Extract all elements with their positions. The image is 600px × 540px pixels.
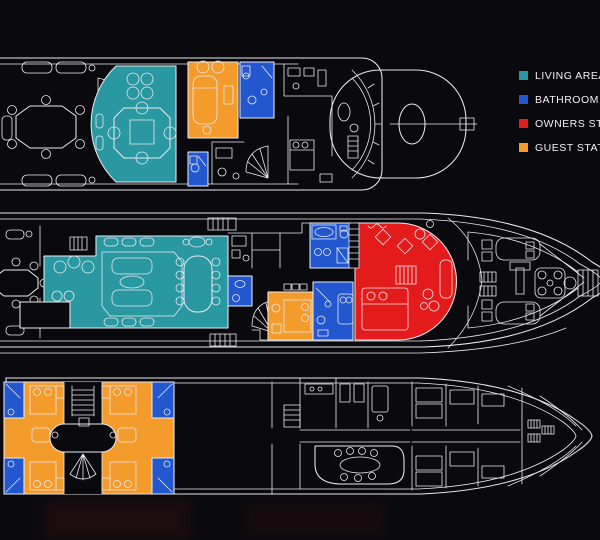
- stairwell-strip: [349, 223, 359, 268]
- lower-deck-plan: [0, 372, 600, 504]
- top-deck-living-area-region: [91, 66, 176, 182]
- legend-swatch-living-area: [519, 71, 528, 80]
- legend-swatch-owners-stateroom: [519, 119, 528, 128]
- crew-mess-table: [340, 457, 380, 473]
- windshield-arc: [352, 70, 381, 178]
- crew-stairs: [284, 405, 300, 427]
- scan-bleed-artifact: [45, 500, 190, 540]
- lower-deck-crew-area: [272, 378, 554, 494]
- legend-item-guest-stateroom: GUEST STAT: [519, 142, 600, 153]
- guest-bathroom-region: [152, 382, 174, 418]
- legend-label-owners-stateroom: OWNERS ST: [535, 118, 600, 130]
- legend-label-guest-stateroom: GUEST STAT: [535, 142, 600, 154]
- aft-deck-table: [16, 106, 76, 148]
- main-deck-foredeck: [468, 232, 598, 328]
- legend-swatch-guest-stateroom: [519, 143, 528, 152]
- owners-stateroom-region: [355, 223, 457, 340]
- legend-swatch-bathroom: [519, 95, 528, 104]
- legend-label-bathroom: BATHROOM: [535, 94, 599, 106]
- scan-bleed-artifact: [245, 502, 385, 536]
- entry-vestibule: [20, 302, 70, 328]
- top-deck-guest-region: [188, 62, 238, 138]
- aft-deck-table: [0, 270, 38, 296]
- vent-grilles: [528, 420, 554, 442]
- legend-item-bathroom: BATHROOM: [519, 94, 600, 105]
- crew-mess-bench: [315, 446, 404, 484]
- guest-bathroom-region: [152, 458, 174, 494]
- top-deck-bathroom-region: [240, 62, 274, 118]
- main-deck-plan: [0, 210, 600, 356]
- legend: LIVING AREA BATHROOM OWNERS ST GUEST STA…: [519, 70, 600, 166]
- top-deck-plan: [0, 56, 480, 192]
- legend-item-living-area: LIVING AREA: [519, 70, 600, 81]
- anchor-windlass: [480, 262, 598, 298]
- legend-label-living-area: LIVING AREA: [535, 70, 600, 82]
- spiral-stairs: [246, 146, 268, 178]
- legend-item-owners-stateroom: OWNERS ST: [519, 118, 600, 129]
